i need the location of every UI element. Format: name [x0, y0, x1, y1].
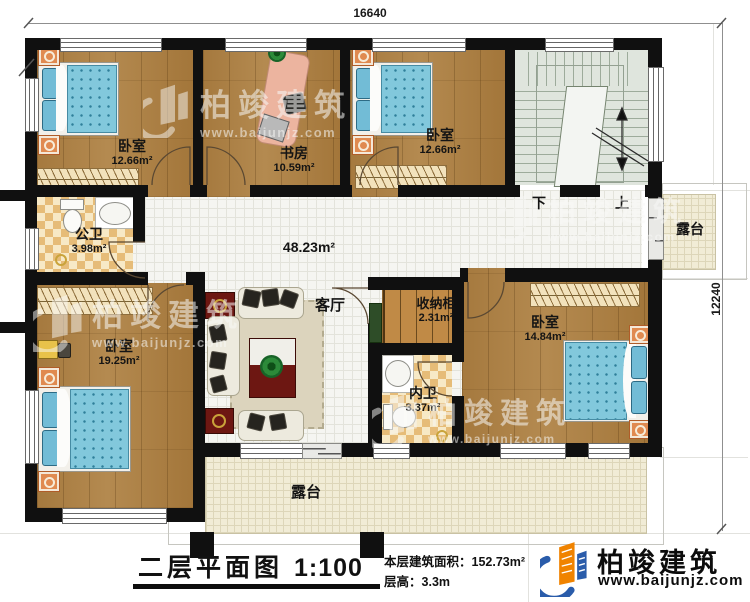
floor-drain [55, 254, 67, 266]
window [25, 390, 39, 464]
window [372, 38, 466, 52]
room-label-study: 书房 10.59m² [274, 146, 315, 174]
window [62, 508, 167, 524]
wall [648, 160, 662, 198]
window [25, 228, 39, 270]
window [60, 38, 162, 52]
plan-title: 二层平面图 1:100 [138, 548, 363, 584]
dimension-top-value: 16640 [340, 6, 400, 20]
window [25, 78, 39, 132]
wall [193, 50, 203, 185]
sofa-pillow [208, 324, 227, 344]
room-label-terrace-right: 露台 [676, 222, 704, 238]
column [360, 532, 384, 558]
plan-scale: 1:100 [294, 554, 363, 582]
mattress [70, 389, 129, 469]
mattress [67, 65, 117, 133]
stat-value: 3.3m [422, 575, 451, 589]
wardrobe [530, 283, 640, 307]
dimension-line-top [28, 23, 722, 24]
wall [505, 268, 660, 282]
pillow [631, 346, 647, 379]
plant [260, 355, 283, 378]
nightstand [353, 136, 373, 154]
wall [464, 443, 500, 457]
wall [340, 50, 350, 185]
watermark-logo-icon [498, 188, 540, 243]
room-label-storage: 收纳柜 2.31m² [416, 297, 455, 324]
sofa-pillow [209, 351, 227, 370]
wall [460, 268, 468, 282]
terrace-sliding-door [302, 443, 342, 459]
room-name: 公卫 [72, 227, 107, 243]
room-name: 客厅 [315, 298, 345, 315]
wall-stub [0, 190, 25, 201]
stairs-up-label: 上 [615, 196, 629, 212]
sofa-pillow [269, 413, 288, 432]
mattress [381, 65, 431, 133]
room-area: 3.98m² [72, 243, 107, 255]
sofa-pillow [241, 288, 261, 308]
dimension-right-value: 12240 [709, 274, 723, 324]
window [588, 443, 630, 459]
nightstand [630, 326, 650, 343]
stat-floor-area: 本层建筑面积：152.73m² [384, 551, 525, 570]
room-name: 收纳柜 [416, 297, 455, 312]
wall [193, 443, 240, 457]
wall [133, 197, 145, 242]
watermark-logo-icon [143, 78, 191, 138]
living-room-label: 客厅 [315, 298, 345, 315]
nightstand [39, 472, 59, 491]
brand-logo-icon [540, 537, 592, 597]
wall-stub [0, 322, 25, 333]
construction-line [660, 457, 748, 458]
construction-line [713, 23, 714, 185]
wall [648, 268, 662, 457]
wall [25, 185, 148, 197]
wall [505, 50, 515, 185]
room-label-bedroom-right: 卧室 14.84m² [525, 315, 566, 343]
pillow [631, 381, 647, 414]
room-label-public-bathroom: 公卫 3.98m² [72, 227, 107, 255]
wall [452, 355, 464, 362]
room-name: 卧室 [420, 128, 461, 144]
wall [560, 185, 600, 197]
stairs-up-text: 上 [615, 196, 629, 212]
terrace-sliding-door [648, 198, 664, 260]
wall [193, 272, 205, 522]
wall [190, 185, 207, 197]
title-underline [133, 584, 380, 589]
room-label-terrace-bottom: 露台 [291, 485, 321, 502]
room-label-bedroom-left: 卧室 19.25m² [99, 339, 140, 367]
end-table-ring [212, 414, 226, 428]
nightstand [39, 136, 59, 154]
stat-label: 本层建筑面积： [384, 555, 472, 569]
stat-label: 层高： [384, 575, 422, 589]
room-label-bedroom-top-right: 卧室 12.66m² [420, 128, 461, 156]
window [500, 443, 566, 459]
wall [368, 277, 382, 288]
room-area: 12.66m² [112, 155, 153, 167]
room-name: 卧室 [525, 315, 566, 331]
wall [564, 443, 588, 457]
brand-website: www.baijunjz.com [598, 572, 743, 589]
hall-area-label: 48.23m² [283, 240, 335, 256]
watermark-logo-icon [372, 388, 420, 448]
end-table-ring [213, 299, 227, 313]
room-area: 19.25m² [99, 355, 140, 367]
room-area: 12.66m² [420, 144, 461, 156]
room-name: 露台 [291, 485, 321, 502]
room-area: 2.31m² [416, 312, 455, 324]
room-name: 卧室 [99, 339, 140, 355]
floor-drain [436, 430, 448, 442]
window [648, 67, 664, 162]
floor-plan-canvas: 卧室 12.66m² 书房 10.59m² 卧室 12.66m² 公卫 3.98… [0, 0, 750, 602]
window [545, 38, 614, 52]
room-label-bedroom-top-left: 卧室 12.66m² [112, 139, 153, 167]
wall [25, 272, 148, 285]
tall-plant [369, 303, 382, 343]
stat-floor-height: 层高：3.3m [384, 571, 450, 590]
mattress [565, 342, 627, 420]
nightstand [630, 421, 650, 438]
room-name: 露台 [676, 222, 704, 238]
room-area: 10.59m² [274, 162, 315, 174]
room-name: 书房 [274, 146, 315, 162]
window [240, 443, 304, 459]
terrace-bottom-floor [205, 455, 647, 534]
wall [452, 396, 464, 455]
room-name: 卧室 [112, 139, 153, 155]
stat-value: 152.73m² [472, 555, 526, 569]
watermark-logo-icon [33, 288, 85, 352]
nightstand [39, 368, 59, 387]
sink-basin [385, 360, 411, 387]
window [225, 38, 307, 52]
sink-basin [99, 202, 131, 225]
room-area: 14.84m² [525, 331, 566, 343]
room-area: 48.23m² [283, 240, 335, 256]
wall [250, 185, 352, 197]
plan-title-text: 二层平面图 [138, 554, 283, 582]
sofa-pillow [261, 288, 280, 307]
